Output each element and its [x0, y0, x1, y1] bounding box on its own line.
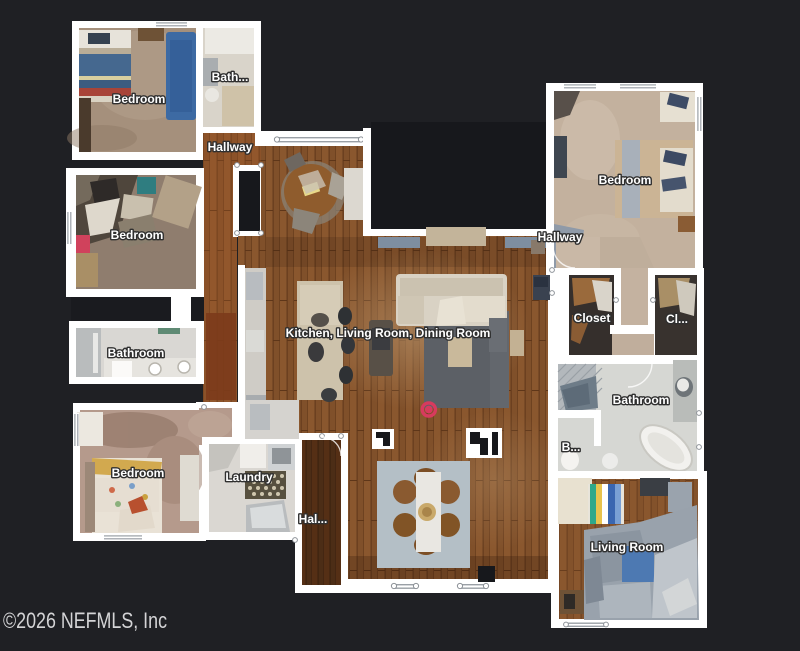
svg-text:Cl...: Cl...	[666, 312, 688, 326]
svg-text:Kitchen, Living Room, Dining R: Kitchen, Living Room, Dining Room	[286, 326, 491, 340]
svg-text:©2026 NEFMLS, Inc: ©2026 NEFMLS, Inc	[3, 608, 167, 633]
svg-text:Bedroom: Bedroom	[113, 92, 166, 106]
svg-text:Living Room: Living Room	[591, 540, 664, 554]
svg-text:Bath...: Bath...	[212, 70, 249, 84]
svg-text:Bathroom: Bathroom	[108, 346, 165, 360]
svg-text:Bedroom: Bedroom	[112, 466, 165, 480]
svg-text:Bedroom: Bedroom	[599, 173, 652, 187]
svg-text:B...: B...	[562, 440, 581, 454]
svg-text:Bedroom: Bedroom	[111, 228, 164, 242]
svg-text:Laundry: Laundry	[225, 470, 273, 484]
svg-text:Hallway: Hallway	[538, 230, 583, 244]
svg-text:Hallway: Hallway	[208, 140, 253, 154]
svg-text:Closet: Closet	[574, 311, 611, 325]
svg-text:Hal...: Hal...	[299, 512, 328, 526]
svg-text:Bathroom: Bathroom	[613, 393, 670, 407]
